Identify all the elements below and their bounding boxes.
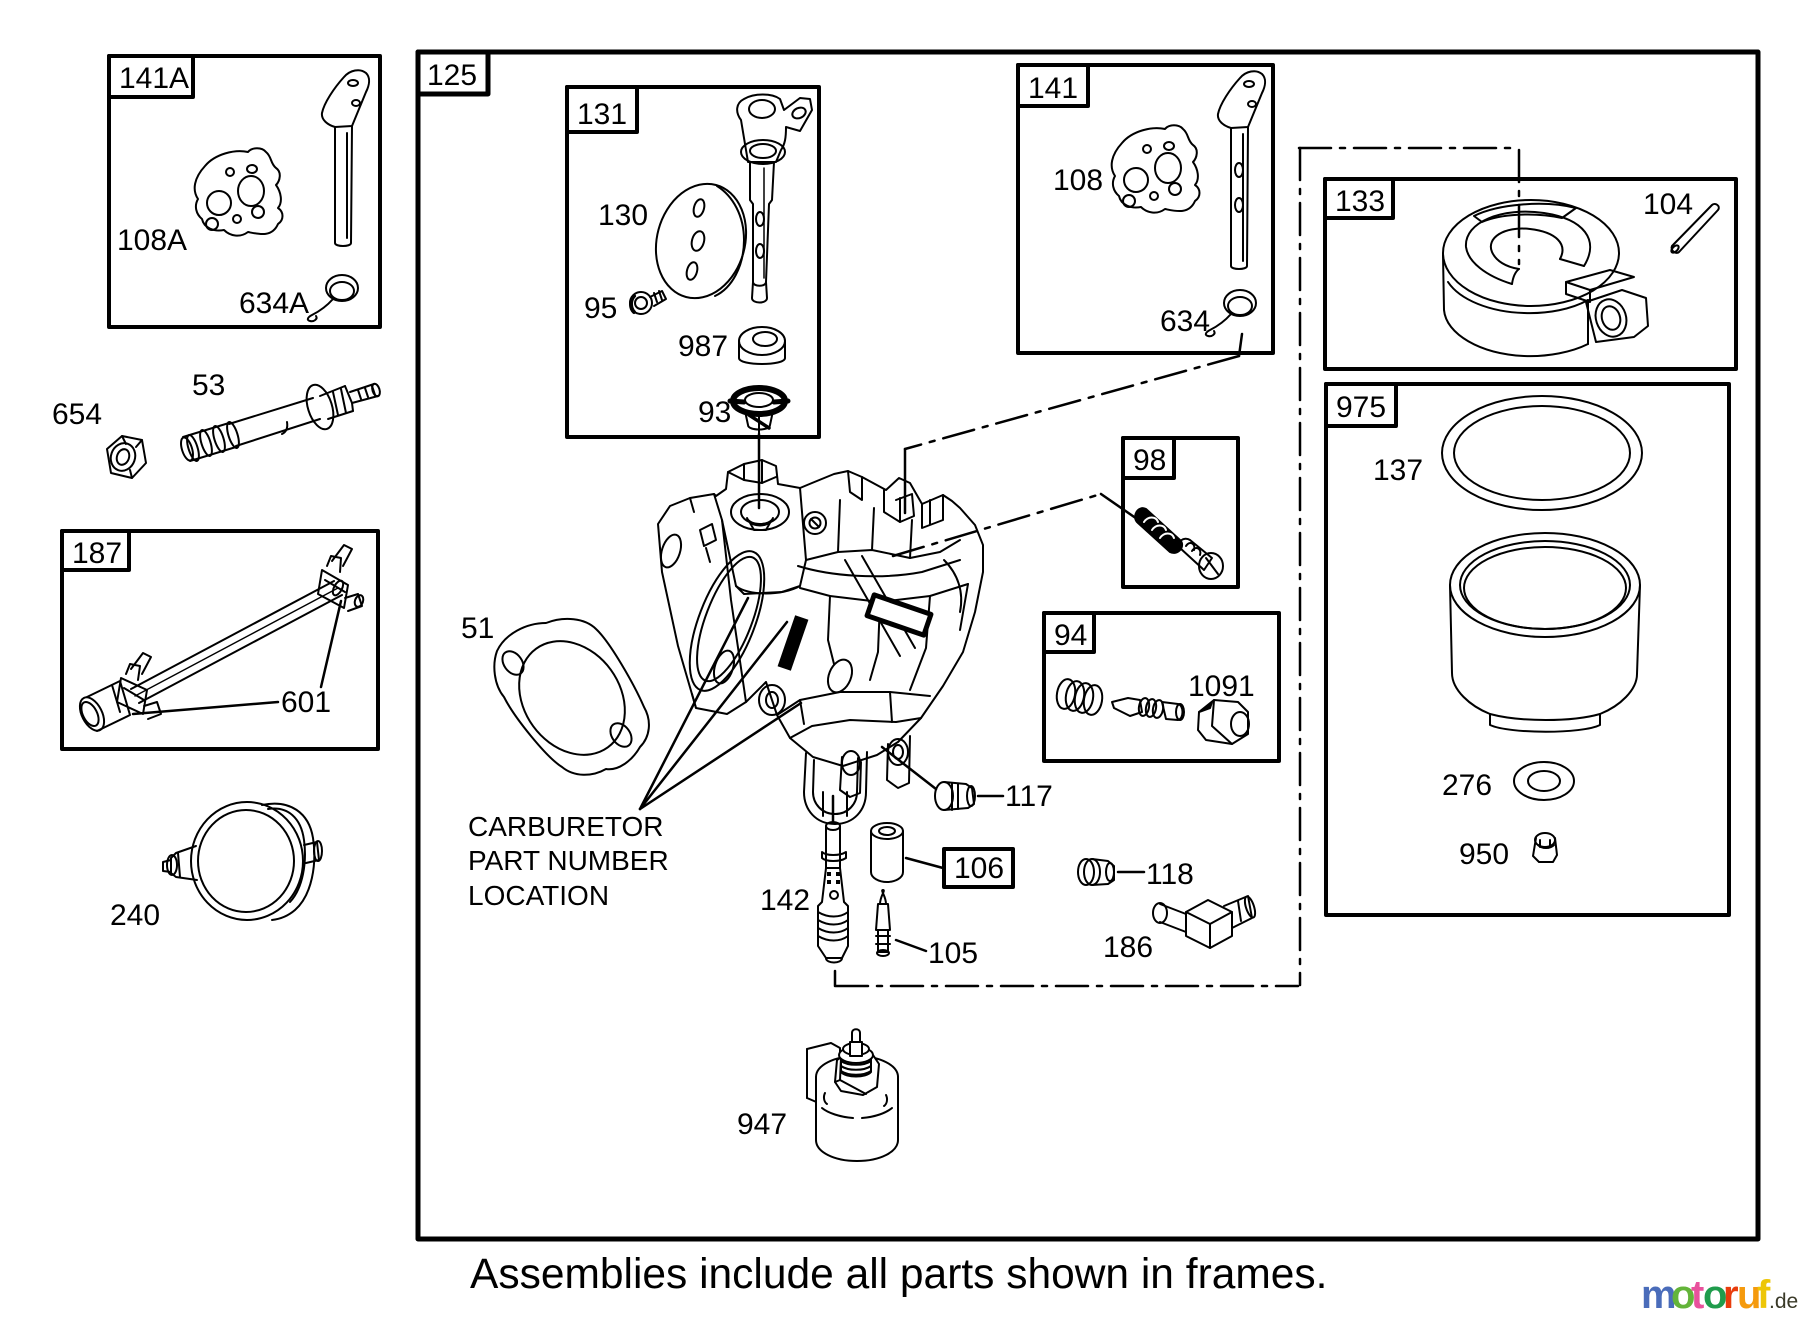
svg-text:95: 95: [584, 292, 617, 325]
svg-text:634A: 634A: [239, 287, 309, 320]
svg-text:975: 975: [1336, 391, 1386, 424]
svg-text:53: 53: [192, 369, 225, 402]
svg-text:98: 98: [1133, 444, 1166, 477]
svg-text:141A: 141A: [119, 62, 189, 95]
svg-text:PART NUMBER: PART NUMBER: [468, 845, 669, 876]
svg-text:950: 950: [1459, 838, 1509, 871]
svg-text:601: 601: [281, 686, 331, 719]
svg-text:108A: 108A: [117, 224, 187, 257]
svg-text:108: 108: [1053, 164, 1103, 197]
svg-text:1091: 1091: [1188, 670, 1255, 703]
svg-text:133: 133: [1335, 185, 1385, 218]
svg-text:240: 240: [110, 899, 160, 932]
svg-text:CARBURETOR: CARBURETOR: [468, 811, 664, 842]
svg-text:.de: .de: [1769, 1290, 1798, 1313]
svg-text:118: 118: [1146, 858, 1194, 891]
svg-text:51: 51: [461, 612, 494, 645]
svg-text:187: 187: [72, 537, 122, 570]
svg-text:141: 141: [1028, 72, 1078, 105]
svg-text:634: 634: [1160, 305, 1210, 338]
svg-text:142: 142: [760, 884, 810, 917]
svg-text:104: 104: [1643, 188, 1693, 221]
svg-text:987: 987: [678, 330, 728, 363]
svg-text:131: 131: [577, 98, 627, 131]
svg-text:276: 276: [1442, 769, 1492, 802]
svg-text:947: 947: [737, 1108, 787, 1141]
svg-text:94: 94: [1054, 619, 1087, 652]
svg-text:Assemblies include all parts s: Assemblies include all parts shown in fr…: [470, 1251, 1327, 1298]
svg-text:93: 93: [698, 396, 731, 429]
svg-text:125: 125: [427, 59, 477, 92]
svg-text:186: 186: [1103, 931, 1153, 964]
svg-text:106: 106: [954, 852, 1004, 885]
svg-text:130: 130: [598, 199, 648, 232]
svg-text:137: 137: [1373, 454, 1423, 487]
svg-text:117: 117: [1005, 780, 1053, 813]
svg-text:654: 654: [52, 398, 102, 431]
svg-text:105: 105: [928, 937, 978, 970]
svg-text:LOCATION: LOCATION: [468, 880, 609, 911]
